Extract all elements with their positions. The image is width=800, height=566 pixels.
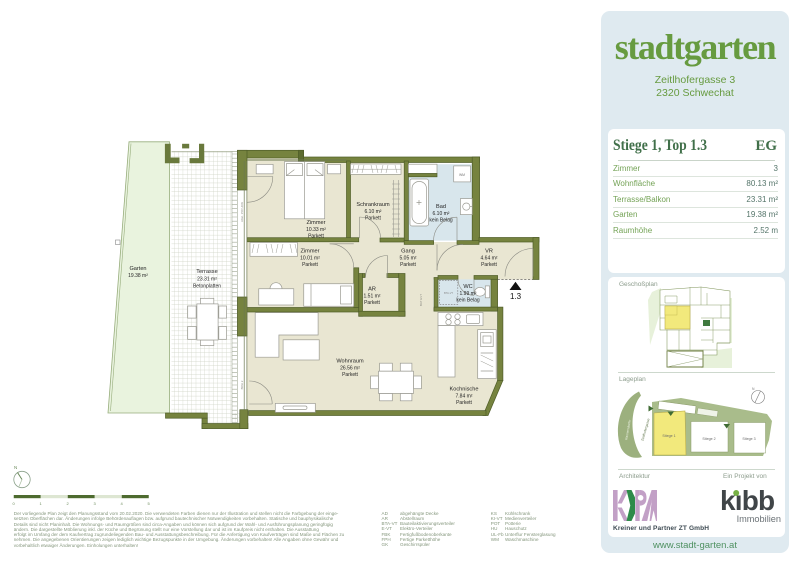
svg-text:Parkett: Parkett <box>342 372 358 378</box>
svg-text:10.01 m²: 10.01 m² <box>300 256 320 262</box>
svg-text:Zimmer: Zimmer <box>301 249 320 255</box>
svg-text:23.31 m²: 23.31 m² <box>197 277 217 283</box>
svg-text:N: N <box>14 465 17 470</box>
svg-text:10.33 m²: 10.33 m² <box>306 227 326 233</box>
svg-text:Parkett: Parkett <box>302 262 318 268</box>
svg-text:Kochnische: Kochnische <box>450 387 479 393</box>
svg-text:Betonplatten: Betonplatten <box>193 284 221 290</box>
svg-text:AR: AR <box>368 287 376 293</box>
svg-text:Wohnraum: Wohnraum <box>336 359 364 365</box>
svg-text:Parkett: Parkett <box>308 234 324 240</box>
svg-text:3: 3 <box>94 501 97 506</box>
svg-text:4: 4 <box>121 501 124 506</box>
svg-text:Stiege 3: Stiege 3 <box>742 437 755 441</box>
svg-text:Stiege 1: Stiege 1 <box>662 434 675 438</box>
svg-text:N: N <box>752 387 755 391</box>
svg-text:Abst. 150 UOK: Abst. 150 UOK <box>240 202 244 222</box>
svg-text:kıbb: kıbb <box>720 485 774 516</box>
svg-text:Parkett: Parkett <box>456 400 472 406</box>
svg-text:2: 2 <box>67 501 70 506</box>
svg-text:Parkett: Parkett <box>365 216 381 222</box>
svg-text:4.64 m²: 4.64 m² <box>481 256 498 262</box>
svg-text:Terrasse: Terrasse <box>196 269 217 275</box>
svg-text:6.10 m²: 6.10 m² <box>433 211 450 217</box>
svg-text:Immobilien: Immobilien <box>737 514 781 524</box>
svg-text:Parkett: Parkett <box>400 262 416 268</box>
svg-text:BTA-VT: BTA-VT <box>444 291 453 295</box>
svg-text:BRH 2: BRH 2 <box>240 380 244 389</box>
svg-text:19.38 m²: 19.38 m² <box>128 273 148 279</box>
svg-text:Parkett: Parkett <box>481 262 497 268</box>
svg-text:1.51 m²: 1.51 m² <box>364 294 381 300</box>
svg-text:Schrankraum: Schrankraum <box>356 202 390 208</box>
svg-text:Parkett: Parkett <box>364 300 380 306</box>
svg-text:WC: WC <box>463 284 472 290</box>
svg-text:kein Belag: kein Belag <box>429 218 453 224</box>
svg-text:1.3: 1.3 <box>510 292 522 301</box>
svg-text:VR: VR <box>485 249 493 255</box>
svg-text:kein Belag: kein Belag <box>456 298 480 304</box>
svg-text:Gang: Gang <box>401 249 415 255</box>
svg-text:Zimmer: Zimmer <box>307 220 326 226</box>
svg-text:0: 0 <box>13 501 16 506</box>
svg-text:WM: WM <box>459 173 465 177</box>
svg-text:7.84 m²: 7.84 m² <box>456 394 473 400</box>
svg-text:5: 5 <box>148 501 151 506</box>
svg-text:Stiege 2: Stiege 2 <box>702 437 715 441</box>
svg-text:BAT EVT: BAT EVT <box>419 294 423 306</box>
svg-text:1.99 m²: 1.99 m² <box>460 291 477 297</box>
svg-text:1: 1 <box>40 501 43 506</box>
svg-text:Bad: Bad <box>436 204 446 210</box>
svg-text:Zeitlhofergasse: Zeitlhofergasse <box>640 418 650 441</box>
svg-text:5.05 m²: 5.05 m² <box>400 256 417 262</box>
svg-text:Garten: Garten <box>129 266 146 272</box>
svg-text:26.56 m²: 26.56 m² <box>340 366 360 372</box>
svg-text:6.10 m²: 6.10 m² <box>365 209 382 215</box>
